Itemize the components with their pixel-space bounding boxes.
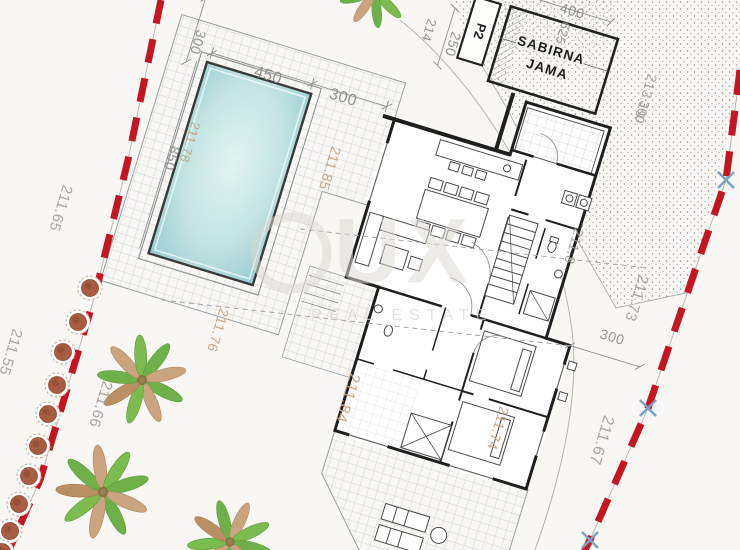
watermark-letters: UX [334,200,474,302]
site-plan-drawing: SABIRNA JAMA P2 UX REAL ESTATE 300450300… [0,0,740,550]
site-plan-screenshot: SABIRNA JAMA P2 UX REAL ESTATE 300450300… [0,0,740,550]
watermark-subtitle: REAL ESTATE [311,307,494,324]
